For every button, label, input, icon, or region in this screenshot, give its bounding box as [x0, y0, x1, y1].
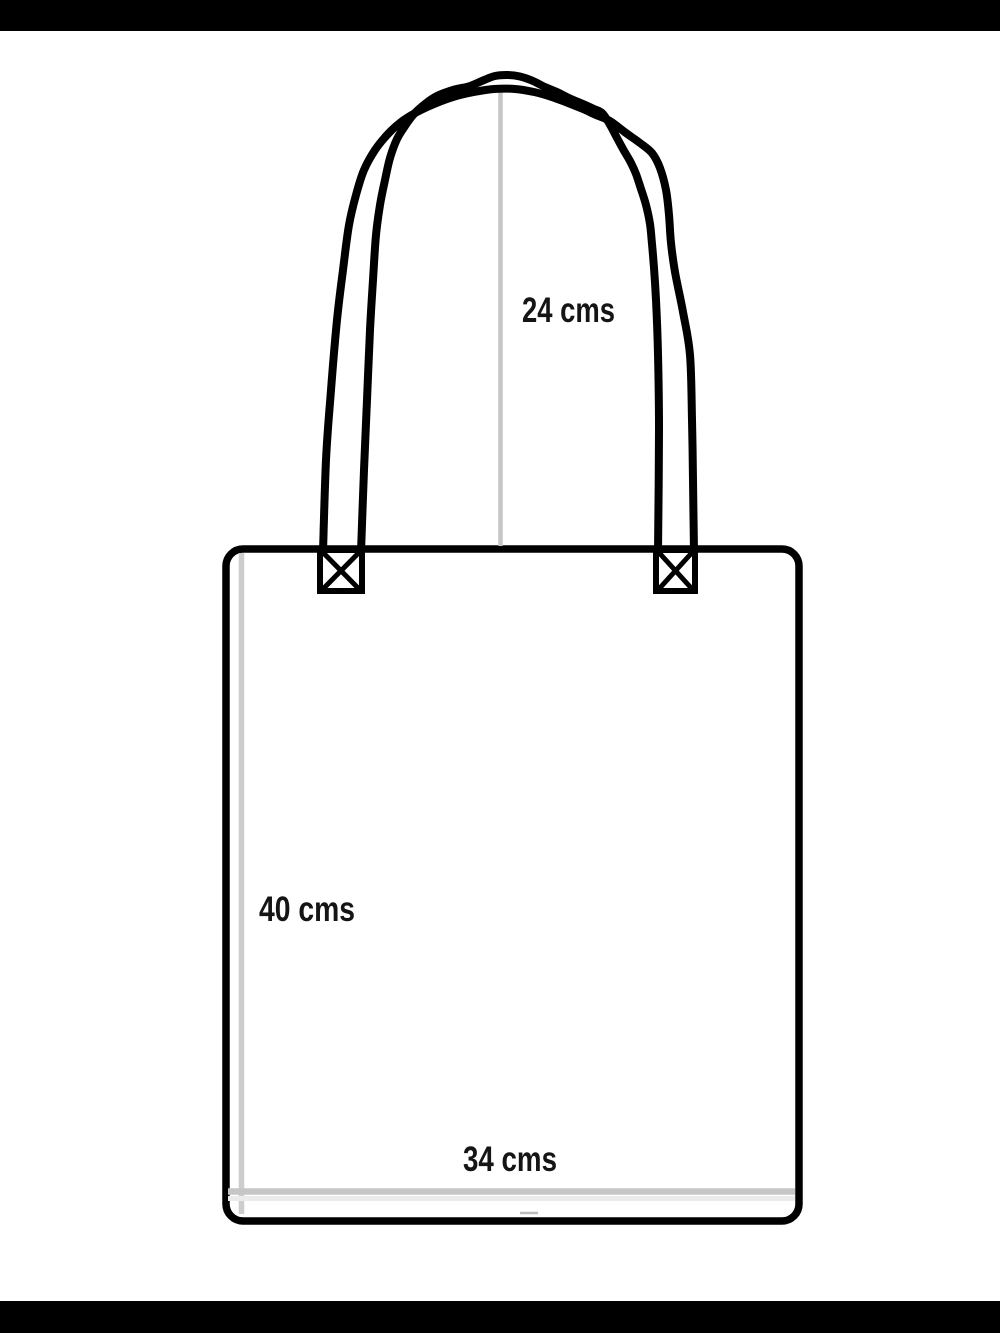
svg-text:24 cms: 24 cms	[522, 291, 615, 330]
svg-text:40 cms: 40 cms	[259, 890, 355, 929]
svg-text:34 cms: 34 cms	[463, 1140, 557, 1179]
